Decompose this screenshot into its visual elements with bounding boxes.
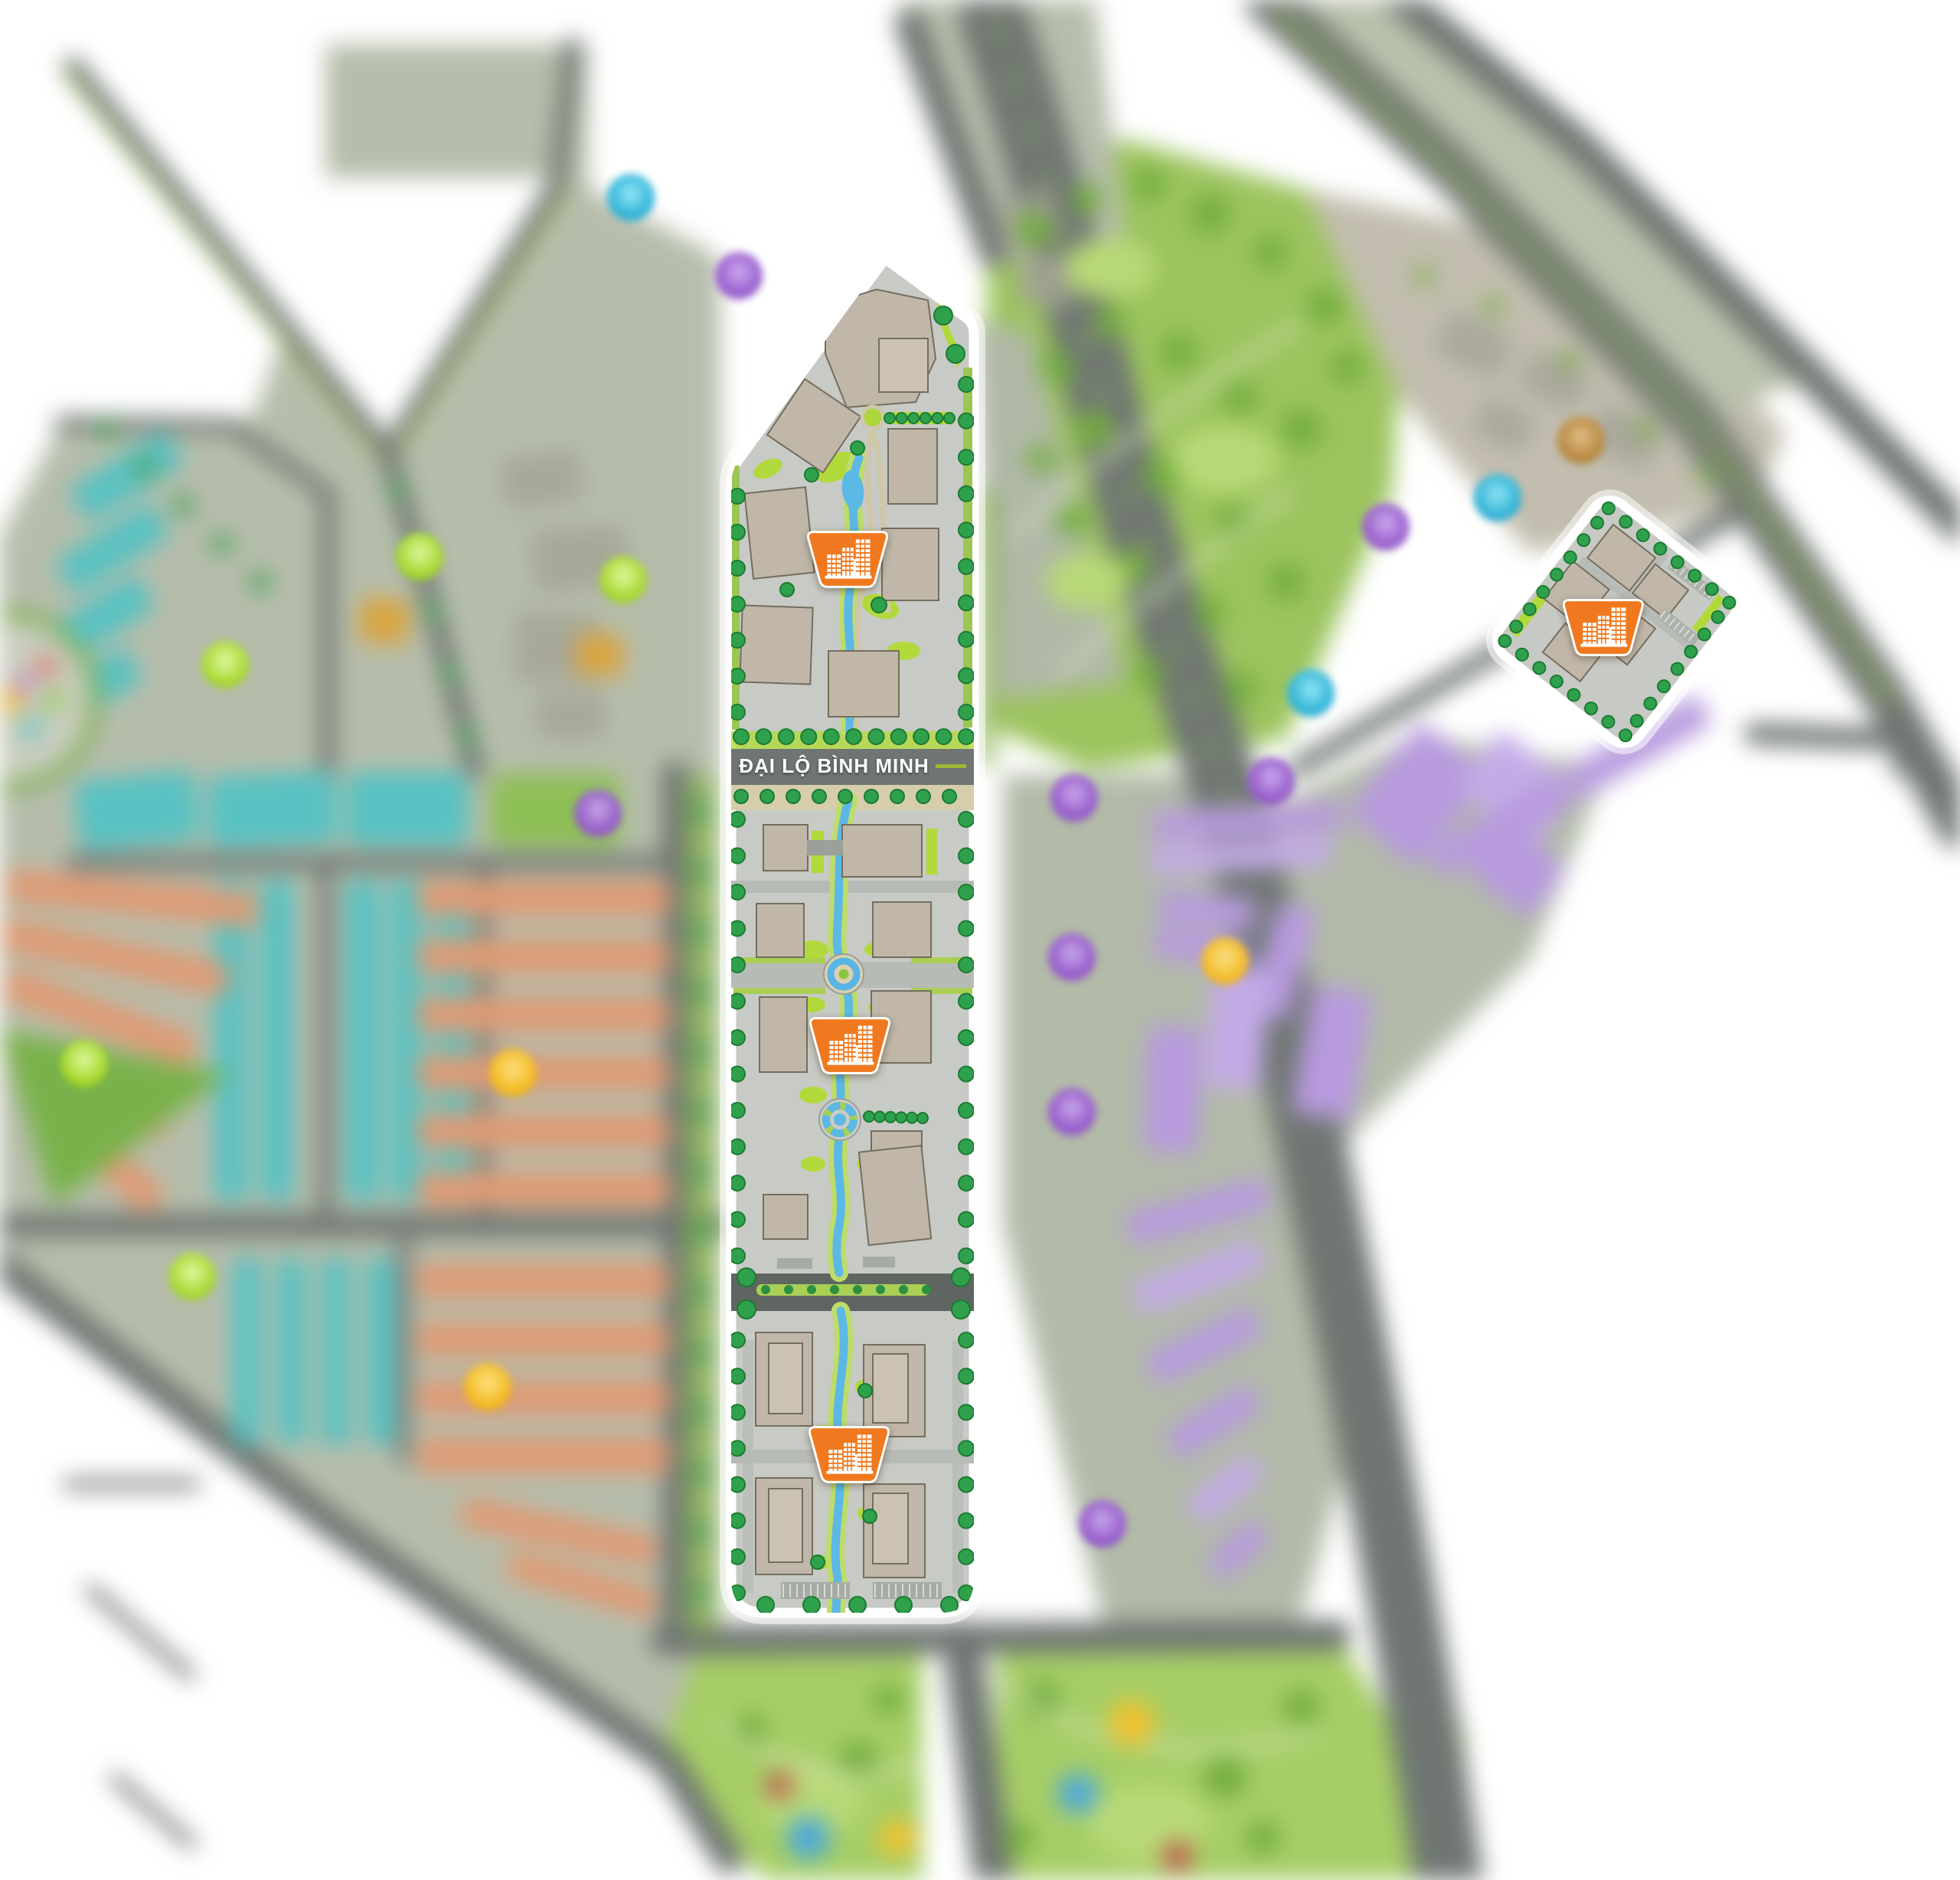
amenity-icon-purple bbox=[1079, 1500, 1126, 1548]
road-name-label: ĐẠI LỘ BÌNH MINH bbox=[731, 747, 974, 784]
amenity-icon-lime bbox=[168, 1253, 216, 1300]
project-marker[interactable] bbox=[805, 1015, 895, 1077]
amenity-icon-cyan bbox=[1474, 474, 1521, 521]
project-marker[interactable] bbox=[802, 528, 893, 591]
amenity-icon-purple bbox=[1247, 757, 1295, 805]
amenity-icon-lime bbox=[201, 641, 249, 688]
amenity-icon-lime bbox=[599, 556, 647, 603]
amenity-icon-purple bbox=[1048, 933, 1096, 981]
amenity-icon-yellow bbox=[1201, 937, 1249, 985]
road-label-dash bbox=[936, 764, 966, 768]
amenity-icon-purple bbox=[1048, 1088, 1096, 1136]
amenity-icon-lime bbox=[60, 1040, 108, 1087]
amenity-icon-purple bbox=[1362, 503, 1410, 551]
amenity-icon-purple bbox=[1050, 774, 1098, 822]
project-marker[interactable] bbox=[1558, 597, 1648, 659]
amenity-icon-yellow bbox=[464, 1363, 511, 1411]
amenity-icon-purple bbox=[715, 252, 763, 299]
masterplan-map: ĐẠI LỘ BÌNH MINH bbox=[0, 0, 1960, 1880]
amenity-icon-cyan bbox=[607, 174, 655, 221]
amenity-icon-lime bbox=[396, 533, 443, 580]
buildings-icon bbox=[802, 528, 893, 591]
amenity-icon-cyan bbox=[1287, 669, 1334, 717]
buildings-icon bbox=[805, 1015, 895, 1077]
road-name-text: ĐẠI LỘ BÌNH MINH bbox=[739, 754, 929, 778]
buildings-icon bbox=[804, 1424, 894, 1486]
amenity-icon-tan bbox=[1557, 417, 1605, 464]
buildings-icon bbox=[1558, 597, 1648, 659]
amenity-icon-yellow bbox=[489, 1049, 537, 1097]
amenity-icon-purple bbox=[574, 790, 622, 837]
project-marker[interactable] bbox=[804, 1424, 894, 1486]
